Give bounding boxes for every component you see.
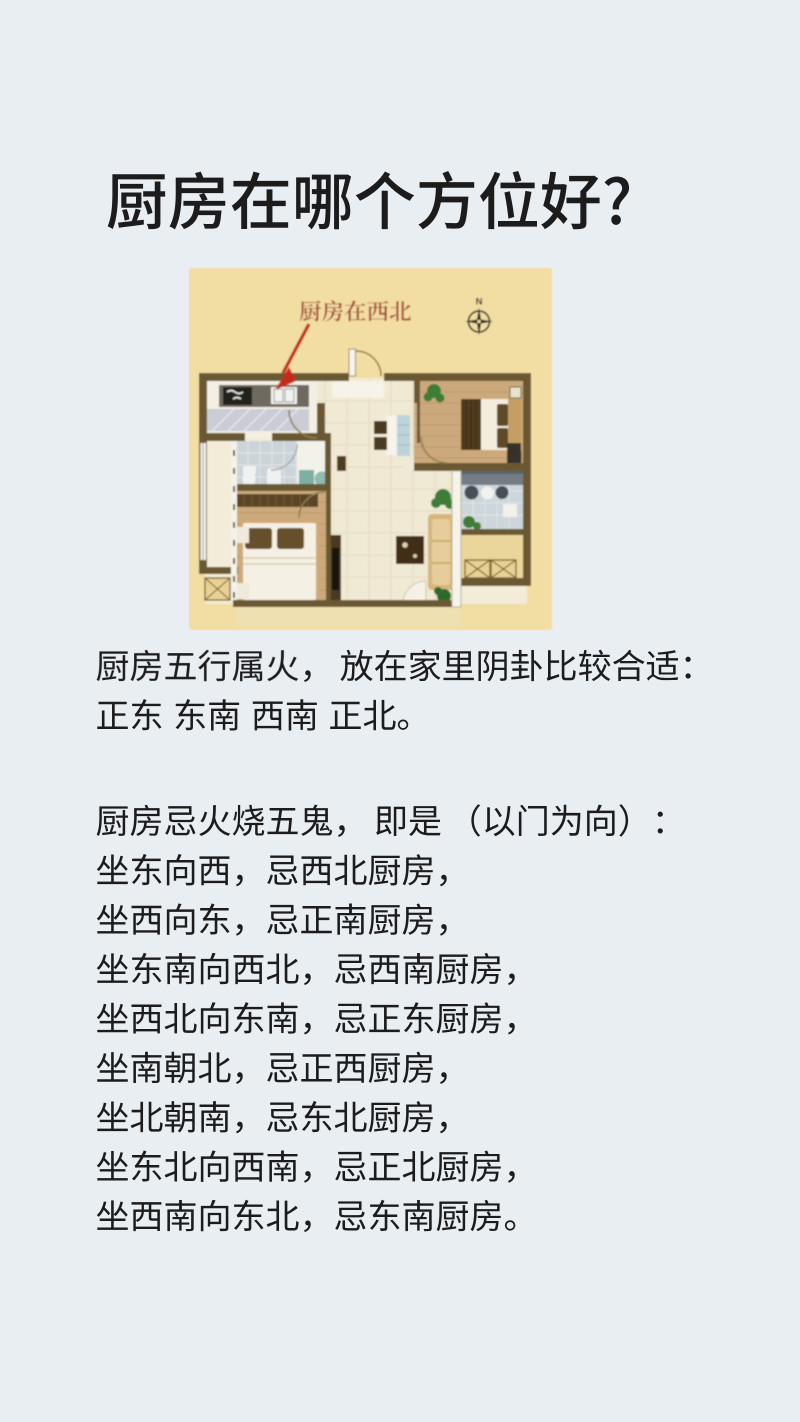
svg-text:N: N bbox=[476, 297, 483, 308]
